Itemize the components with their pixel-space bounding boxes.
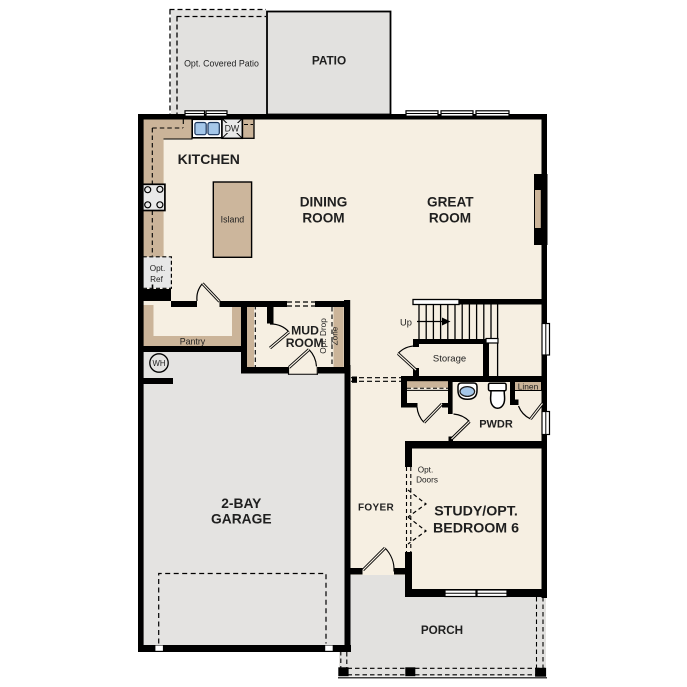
- svg-text:KITCHEN: KITCHEN: [178, 151, 240, 167]
- svg-text:GARAGE: GARAGE: [211, 512, 272, 527]
- svg-text:Island: Island: [221, 215, 245, 225]
- svg-text:DW: DW: [225, 124, 240, 134]
- svg-text:Doors: Doors: [416, 476, 438, 485]
- svg-text:Storage: Storage: [433, 354, 466, 365]
- svg-text:Ref: Ref: [150, 275, 163, 284]
- svg-text:PWDR: PWDR: [479, 419, 513, 431]
- svg-text:ROOM: ROOM: [286, 336, 324, 350]
- svg-text:Opt.: Opt.: [418, 466, 433, 475]
- svg-text:STUDY/OPT.: STUDY/OPT.: [434, 504, 518, 520]
- svg-text:BEDROOM 6: BEDROOM 6: [433, 521, 519, 537]
- svg-text:2-BAY: 2-BAY: [221, 496, 261, 511]
- svg-text:Pantry: Pantry: [180, 337, 206, 347]
- svg-text:Opt. Covered Patio: Opt. Covered Patio: [184, 59, 259, 69]
- svg-text:FOYER: FOYER: [358, 503, 394, 514]
- svg-text:Opt.: Opt.: [150, 264, 165, 273]
- svg-text:PATIO: PATIO: [312, 54, 346, 68]
- svg-text:GREAT: GREAT: [427, 195, 474, 210]
- svg-text:Linen: Linen: [518, 382, 539, 392]
- svg-text:ROOM: ROOM: [429, 211, 471, 226]
- svg-text:Zone: Zone: [331, 326, 340, 345]
- svg-text:ROOM: ROOM: [302, 211, 344, 226]
- svg-text:DINING: DINING: [300, 195, 348, 210]
- svg-text:Up: Up: [400, 318, 412, 328]
- svg-text:PORCH: PORCH: [421, 624, 463, 637]
- svg-text:WH: WH: [153, 359, 166, 368]
